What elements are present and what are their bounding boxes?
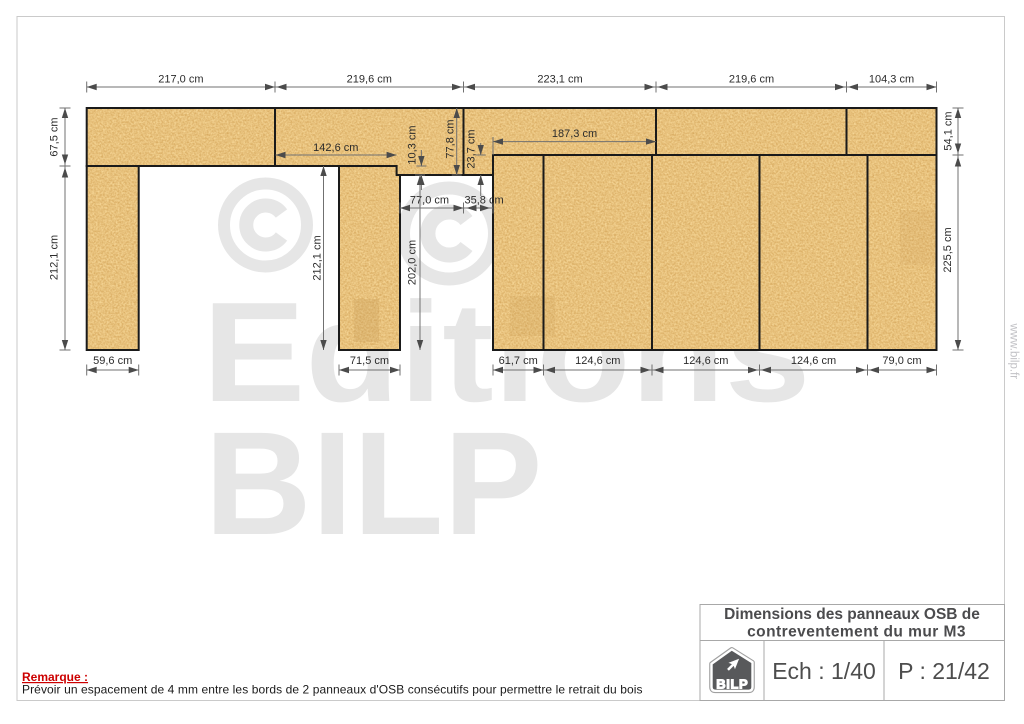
svg-text:217,0 cm: 217,0 cm	[158, 74, 203, 86]
svg-text:Ech : 1/40: Ech : 1/40	[772, 658, 876, 684]
svg-text:124,6 cm: 124,6 cm	[791, 355, 836, 367]
svg-text:contreventement du mur M3: contreventement du mur M3	[747, 624, 966, 641]
svg-text:35,8 cm: 35,8 cm	[465, 195, 504, 207]
svg-text:212,1 cm: 212,1 cm	[312, 235, 324, 280]
svg-text:77,0 cm: 77,0 cm	[410, 195, 449, 207]
svg-text:Dimensions des panneaux OSB de: Dimensions des panneaux OSB de	[724, 606, 980, 623]
svg-text:219,6 cm: 219,6 cm	[347, 74, 392, 86]
svg-text:71,5 cm: 71,5 cm	[350, 355, 389, 367]
svg-text:223,1 cm: 223,1 cm	[537, 74, 582, 86]
svg-text:BILP: BILP	[205, 402, 543, 566]
svg-text:124,6 cm: 124,6 cm	[575, 355, 620, 367]
svg-text:59,6 cm: 59,6 cm	[93, 355, 132, 367]
svg-text:Prévoir un espacement de 4 mm: Prévoir un espacement de 4 mm entre les …	[22, 683, 643, 697]
svg-text:79,0 cm: 79,0 cm	[882, 355, 921, 367]
svg-text:225,5 cm: 225,5 cm	[942, 227, 954, 272]
svg-text:142,6 cm: 142,6 cm	[313, 142, 358, 154]
svg-text:77,8 cm: 77,8 cm	[445, 119, 457, 158]
svg-text:BILP: BILP	[716, 677, 748, 692]
svg-text:61,7 cm: 61,7 cm	[499, 355, 538, 367]
svg-text:54,1 cm: 54,1 cm	[943, 111, 955, 150]
svg-text:P : 21/42: P : 21/42	[898, 658, 990, 684]
svg-text:67,5 cm: 67,5 cm	[49, 117, 61, 156]
svg-text:202,0 cm: 202,0 cm	[407, 240, 419, 285]
svg-text:23,7 cm: 23,7 cm	[466, 129, 478, 168]
svg-text:187,3 cm: 187,3 cm	[552, 128, 597, 140]
svg-text:104,3 cm: 104,3 cm	[869, 74, 914, 86]
svg-text:212,1 cm: 212,1 cm	[49, 235, 61, 280]
svg-text:124,6 cm: 124,6 cm	[683, 355, 728, 367]
svg-text:10,3 cm: 10,3 cm	[407, 125, 419, 164]
svg-text:www.bilp.fr: www.bilp.fr	[1008, 323, 1020, 380]
svg-text:219,6 cm: 219,6 cm	[729, 74, 774, 86]
